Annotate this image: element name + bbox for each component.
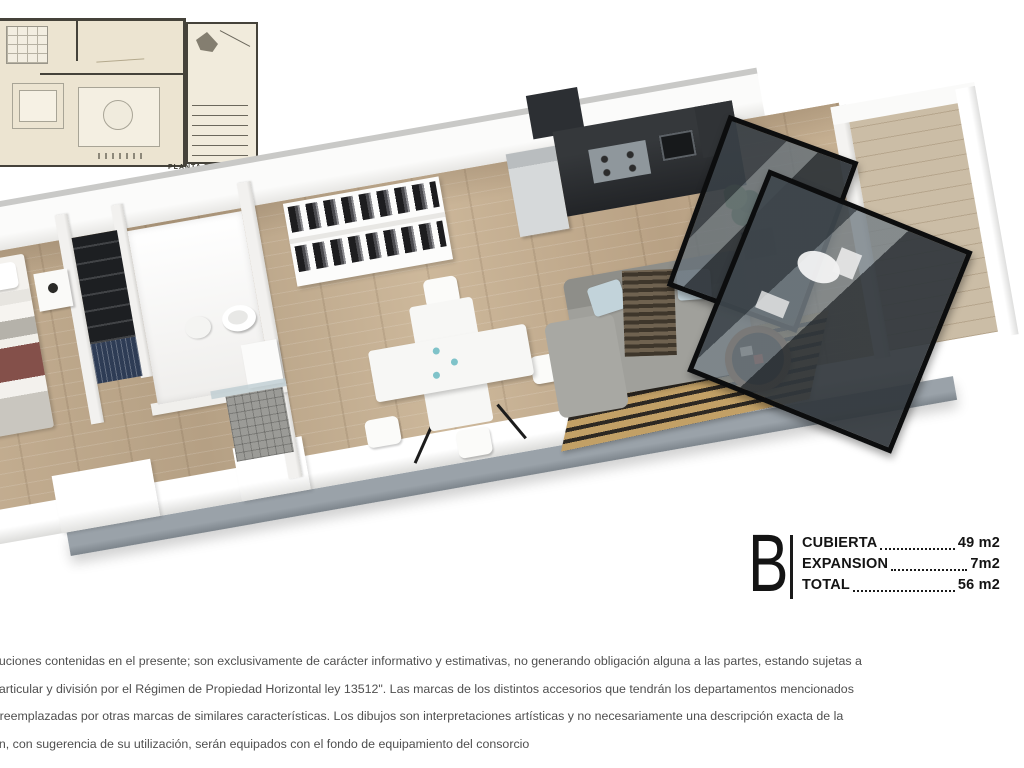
disclaimer-line: ón, con sugerencia de su utilización, se… bbox=[0, 731, 1024, 759]
area-label: CUBIERTA bbox=[802, 533, 877, 554]
dotted-leader bbox=[891, 569, 967, 571]
disclaimer-line: r reemplazadas por otras marcas de simil… bbox=[0, 703, 1024, 731]
mini-plan-wall bbox=[40, 73, 183, 75]
mini-plan-bed-symbol bbox=[78, 87, 160, 147]
mini-plan-hatch-marks bbox=[98, 153, 142, 159]
unit-letter: B bbox=[748, 532, 778, 596]
mini-plan-annotation-squiggle bbox=[96, 49, 145, 62]
area-row-total: TOTAL 56 m2 bbox=[802, 575, 1000, 596]
mini-plan-kitchen-symbol bbox=[6, 26, 48, 64]
mini-plan-wall bbox=[76, 21, 78, 61]
pillow bbox=[0, 261, 19, 296]
unit-info-block: B CUBIERTA 49 m2 EXPANSION 7m2 TOTAL 56 … bbox=[748, 532, 1000, 606]
dining-chair bbox=[364, 415, 402, 448]
area-label: EXPANSION bbox=[802, 554, 888, 575]
shower-floor bbox=[225, 387, 294, 462]
disclaimer-text: buciones contenidas en el presente; son … bbox=[0, 648, 1024, 758]
area-value: 7m2 bbox=[970, 554, 1000, 575]
mini-plan-table-symbol bbox=[12, 83, 64, 129]
area-row-expansion: EXPANSION 7m2 bbox=[802, 554, 1000, 575]
area-row-cubierta: CUBIERTA 49 m2 bbox=[802, 533, 1000, 554]
mini-plan-balcony bbox=[186, 22, 258, 164]
glass-reflection bbox=[755, 290, 790, 318]
mini-plan-chair-symbol bbox=[103, 100, 133, 130]
area-value: 56 m2 bbox=[958, 575, 1000, 596]
mini-plan-plant-symbol bbox=[196, 32, 218, 52]
dotted-leader bbox=[880, 548, 954, 550]
dotted-leader bbox=[853, 590, 955, 592]
dining-chair bbox=[455, 426, 493, 459]
mini-plan-diagonal-line bbox=[220, 30, 250, 47]
mini-plan-outline bbox=[0, 18, 186, 167]
unit-divider-line bbox=[790, 535, 793, 599]
washbasin bbox=[183, 314, 212, 340]
disclaimer-line: particular y división por el Régimen de … bbox=[0, 676, 1024, 704]
area-value: 49 m2 bbox=[958, 533, 1000, 554]
wardrobe-shelves bbox=[90, 336, 142, 383]
mini-floorplan-2d: PLANTA TIPO bbox=[0, 0, 260, 180]
unit-area-rows: CUBIERTA 49 m2 EXPANSION 7m2 TOTAL 56 m2 bbox=[802, 532, 1000, 596]
toilet bbox=[220, 302, 258, 334]
disclaimer-line: buciones contenidas en el presente; son … bbox=[0, 648, 1024, 676]
mini-plan-louver-lines bbox=[192, 96, 248, 156]
nightstand bbox=[33, 268, 73, 311]
lamp bbox=[47, 282, 59, 294]
area-label: TOTAL bbox=[802, 575, 850, 596]
